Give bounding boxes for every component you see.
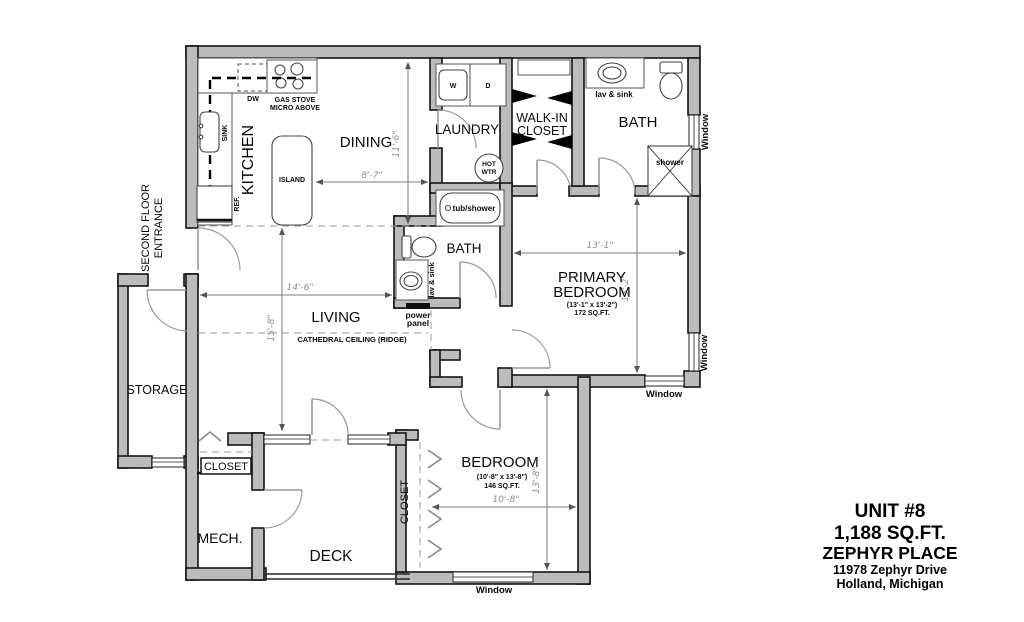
- walkin-shelf: [518, 60, 570, 75]
- wall-storage-top-a: [118, 274, 148, 286]
- dimensions: 8'-7" 11'-6" 14'-6" 15'-8" 13'-1" 13'-2"…: [200, 62, 686, 570]
- bath-mid-sink-bowl: [404, 276, 418, 287]
- tub-drain: [446, 206, 451, 211]
- label-shower: shower: [656, 158, 684, 167]
- window-label-primary-bottom: Window: [646, 389, 683, 400]
- dim-primary-w: 13'-1": [586, 241, 613, 251]
- room-label-primary-dims: (13'-1" x 13'-2"): [567, 302, 617, 309]
- bedroom-closet-hanger-4: [428, 540, 441, 558]
- wall-kitchen-left: [186, 46, 198, 228]
- wall-bedroom-right: [578, 377, 590, 584]
- label-dryer: D: [485, 83, 490, 90]
- room-label-laundry: LAUNDRY: [435, 122, 499, 137]
- label-island: ISLAND: [279, 177, 305, 184]
- title-project: ZEPHYR PLACE: [822, 543, 957, 563]
- floor-plan-drawing: 8'-7" 11'-6" 14'-6" 15'-8" 13'-1" 13'-2"…: [0, 0, 1024, 622]
- title-block: UNIT #8 1,188 SQ.FT. ZEPHYR PLACE 11978 …: [822, 501, 957, 591]
- label-ceiling: CATHEDRAL CEILING (RIDGE): [297, 335, 407, 344]
- kitchen-faucet-2: [199, 135, 203, 139]
- power-panel: [406, 303, 430, 309]
- wall-storage-left: [118, 274, 128, 468]
- room-label-bedroom-dims: (10'-8" x 13'-8"): [477, 474, 527, 481]
- label-power-2: panel: [407, 318, 429, 328]
- bedroom-closet-hanger-3: [428, 510, 441, 528]
- room-label-entrance-2: ENTRANCE: [153, 198, 165, 259]
- window-living-deck-b: [348, 435, 390, 444]
- room-label-bath-mid: BATH: [446, 241, 481, 256]
- dim-dining-w: 8'-7": [361, 171, 382, 181]
- window-label-bath-right: Window: [700, 113, 711, 150]
- stove-burner-4: [293, 79, 303, 89]
- room-label-primary-area: 172 SQ.FT.: [574, 310, 609, 317]
- label-lav-mid: lav & sink: [427, 262, 436, 298]
- primary-door-arc: [512, 330, 550, 368]
- wall-storage-bottom-a: [118, 456, 152, 468]
- label-ref: REF.: [234, 196, 241, 211]
- entry-door-arc: [198, 228, 240, 270]
- kitchen-sink: [200, 112, 219, 152]
- bath-mid-toilet-tank: [402, 236, 411, 258]
- dim-bedroom-w: 10'-8": [492, 495, 519, 505]
- wall-living-bottom-corner: [388, 433, 406, 445]
- bath-top-toilet-bowl: [660, 73, 682, 99]
- wall-closet-right-vert: [252, 433, 264, 490]
- label-stove-2: MICRO ABOVE: [270, 105, 320, 112]
- wall-walkin-bath-divider: [572, 58, 584, 186]
- bath-top-door-arc: [599, 158, 635, 194]
- wall-walkin-bottom-right: [569, 186, 599, 196]
- room-label-bedroom: BEDROOM: [461, 454, 539, 471]
- window-living-deck-a: [264, 435, 310, 444]
- windows: [152, 115, 699, 582]
- dim-dining-h: 11'-6": [392, 130, 402, 157]
- dim-living-h: 15'-8": [267, 314, 277, 341]
- room-label-walkin-2: CLOSET: [517, 124, 567, 138]
- room-label-entrance-1: SECOND FLOOR: [140, 184, 152, 272]
- wall-corner-bottom-right: [684, 371, 700, 387]
- deck-door-arc: [312, 399, 348, 435]
- title-address-1: 11978 Zephyr Drive: [833, 563, 947, 577]
- label-stove-1: GAS STOVE: [275, 97, 316, 104]
- wall-mech-right-lower: [252, 528, 264, 580]
- room-label-living: LIVING: [311, 309, 360, 326]
- bath-top-toilet-tank: [660, 62, 682, 73]
- refrigerator: [197, 186, 232, 222]
- walkin-door-arc: [537, 160, 571, 194]
- wall-top: [186, 46, 700, 58]
- closet-chevron-mark: [199, 432, 221, 441]
- room-label-primary-2: BEDROOM: [553, 284, 631, 301]
- title-address-2: Holland, Michigan: [837, 577, 944, 591]
- water-heater: [475, 154, 503, 182]
- window-storage-bottom: [152, 458, 184, 467]
- wall-midbath-top: [394, 216, 442, 226]
- label-tub: tub/shower: [453, 204, 496, 213]
- room-label-bath-top: BATH: [619, 114, 658, 131]
- bedroom-door-arc: [461, 390, 500, 429]
- room-label-storage: STORAGE: [127, 383, 188, 397]
- label-washer: W: [450, 83, 457, 90]
- hanger-rod-icon-3: [547, 91, 572, 105]
- room-label-closet: CLOSET: [204, 461, 248, 473]
- room-label-closet-bedroom: CLOSET: [399, 480, 411, 524]
- room-label-bedroom-area: 146 SQ.FT.: [484, 483, 519, 490]
- label-hot-1: HOT: [482, 161, 496, 168]
- stove-burner-2: [291, 63, 303, 75]
- wall-right-outer-upper: [688, 58, 700, 115]
- bath-mid-toilet-bowl: [412, 237, 436, 257]
- wall-primary-bottom: [502, 375, 645, 387]
- wall-right-outer-primary: [688, 196, 700, 333]
- room-label-dining: DINING: [340, 134, 393, 151]
- label-dw: DW: [247, 96, 259, 103]
- title-area: 1,188 SQ.FT.: [834, 523, 946, 544]
- mech-door-arc: [264, 490, 302, 528]
- bath-top-sink-bowl: [603, 67, 621, 79]
- wall-bedroom-top-left: [430, 377, 462, 387]
- storage-door-arc: [147, 290, 188, 331]
- label-hot-2: WTR: [482, 169, 497, 176]
- floor-plan-page: 8'-7" 11'-6" 14'-6" 15'-8" 13'-1" 13'-2"…: [0, 0, 1024, 622]
- room-label-mech: MECH.: [197, 530, 242, 546]
- title-unit: UNIT #8: [855, 501, 926, 522]
- room-label-kitchen: KITCHEN: [240, 125, 257, 195]
- stove-burner-1: [275, 65, 285, 75]
- window-label-bedroom-bottom: Window: [476, 585, 513, 596]
- room-label-walkin-1: WALK-IN: [516, 111, 568, 125]
- bedroom-closet-hanger-1: [428, 450, 441, 468]
- stove-burner-3: [276, 78, 286, 88]
- window-label-primary-right: Window: [699, 334, 710, 371]
- wall-storage-right: [186, 274, 198, 580]
- room-label-deck: DECK: [309, 548, 353, 565]
- kitchen-faucet-1: [199, 124, 203, 128]
- hanger-rod-icon-1: [512, 89, 537, 103]
- label-lav-top: lav & sink: [595, 90, 633, 99]
- label-sink: SINK: [222, 125, 229, 142]
- bath-mid-door-arc: [460, 262, 496, 298]
- bedroom-closet-hanger-2: [428, 480, 441, 498]
- dim-living-w: 14'-6": [286, 283, 313, 293]
- wall-primary-left-jamb: [498, 368, 512, 387]
